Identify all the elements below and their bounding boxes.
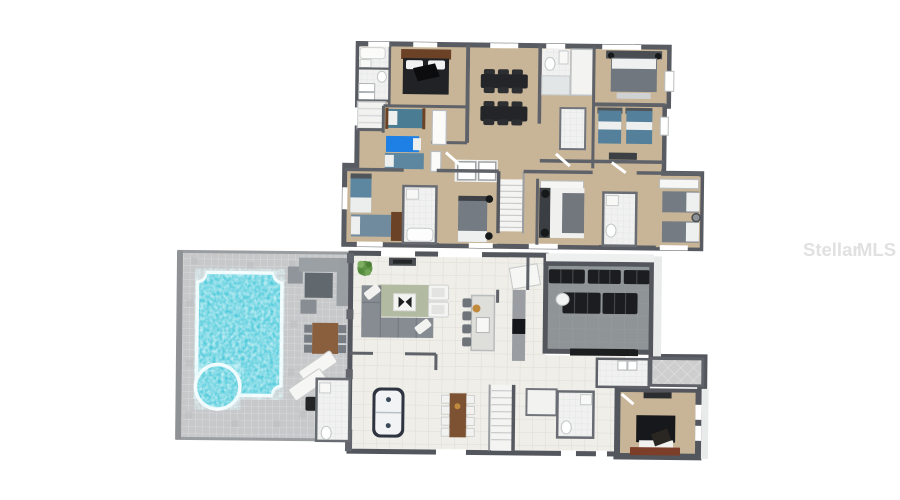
svg-text:Stellar: Stellar <box>803 239 860 260</box>
svg-text:MLS: MLS <box>857 239 896 260</box>
